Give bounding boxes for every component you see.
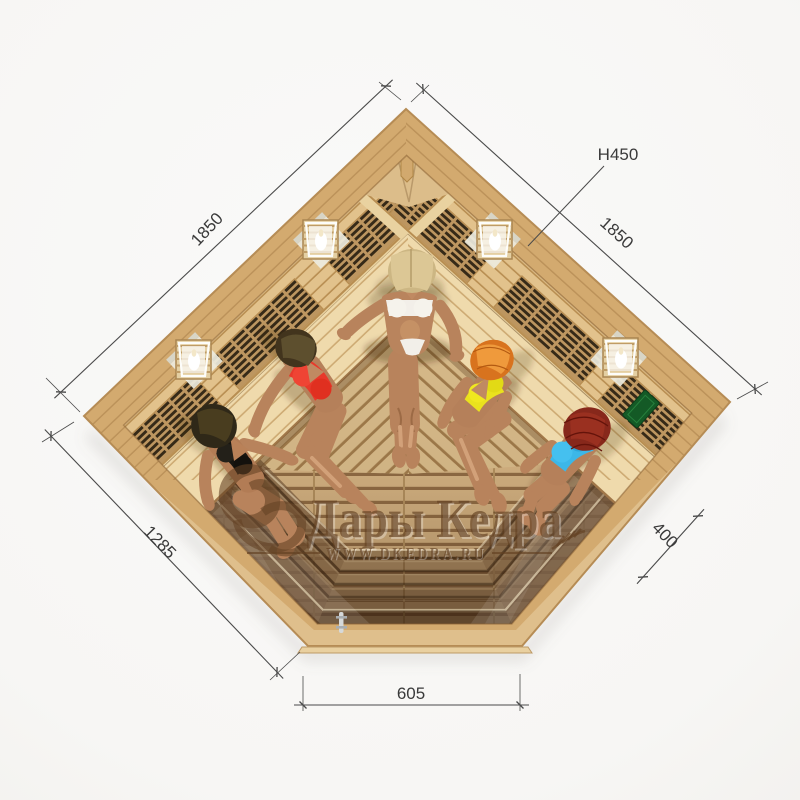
svg-text:H450: H450 [598, 145, 639, 164]
svg-text:WWW.DKEDRA.RU: WWW.DKEDRA.RU [326, 544, 486, 563]
svg-text:605: 605 [397, 684, 425, 703]
svg-text:Дары Кедра: Дары Кедра [306, 488, 562, 549]
